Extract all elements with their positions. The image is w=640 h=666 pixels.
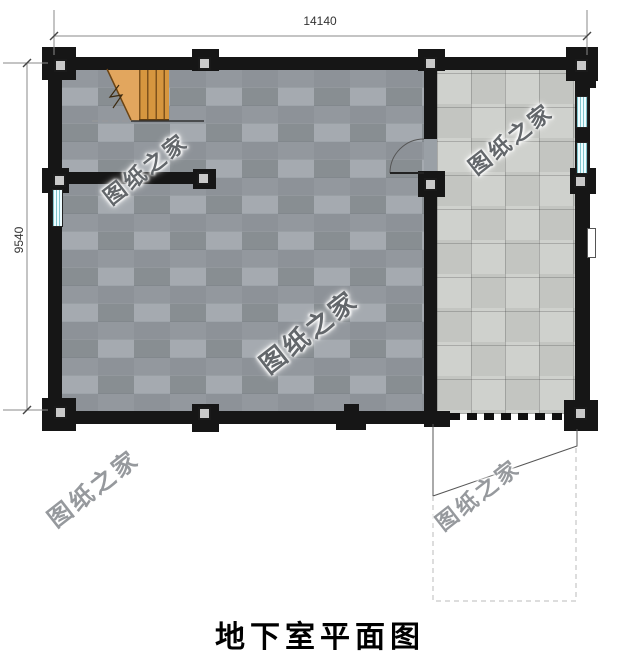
stair-break-line <box>107 69 131 120</box>
drawing-title: 地下室平面图 <box>0 612 640 656</box>
dimension-label-height: 9540 <box>12 227 26 254</box>
door-swing-arc <box>390 139 424 173</box>
dimension-label-width: 14140 <box>285 14 355 28</box>
dimension-tick-marks <box>23 32 591 414</box>
floor-plan-canvas: 图纸之家 图纸之家 图纸之家 图纸之家 图纸之家 14140 9540 地下室平… <box>0 0 640 666</box>
